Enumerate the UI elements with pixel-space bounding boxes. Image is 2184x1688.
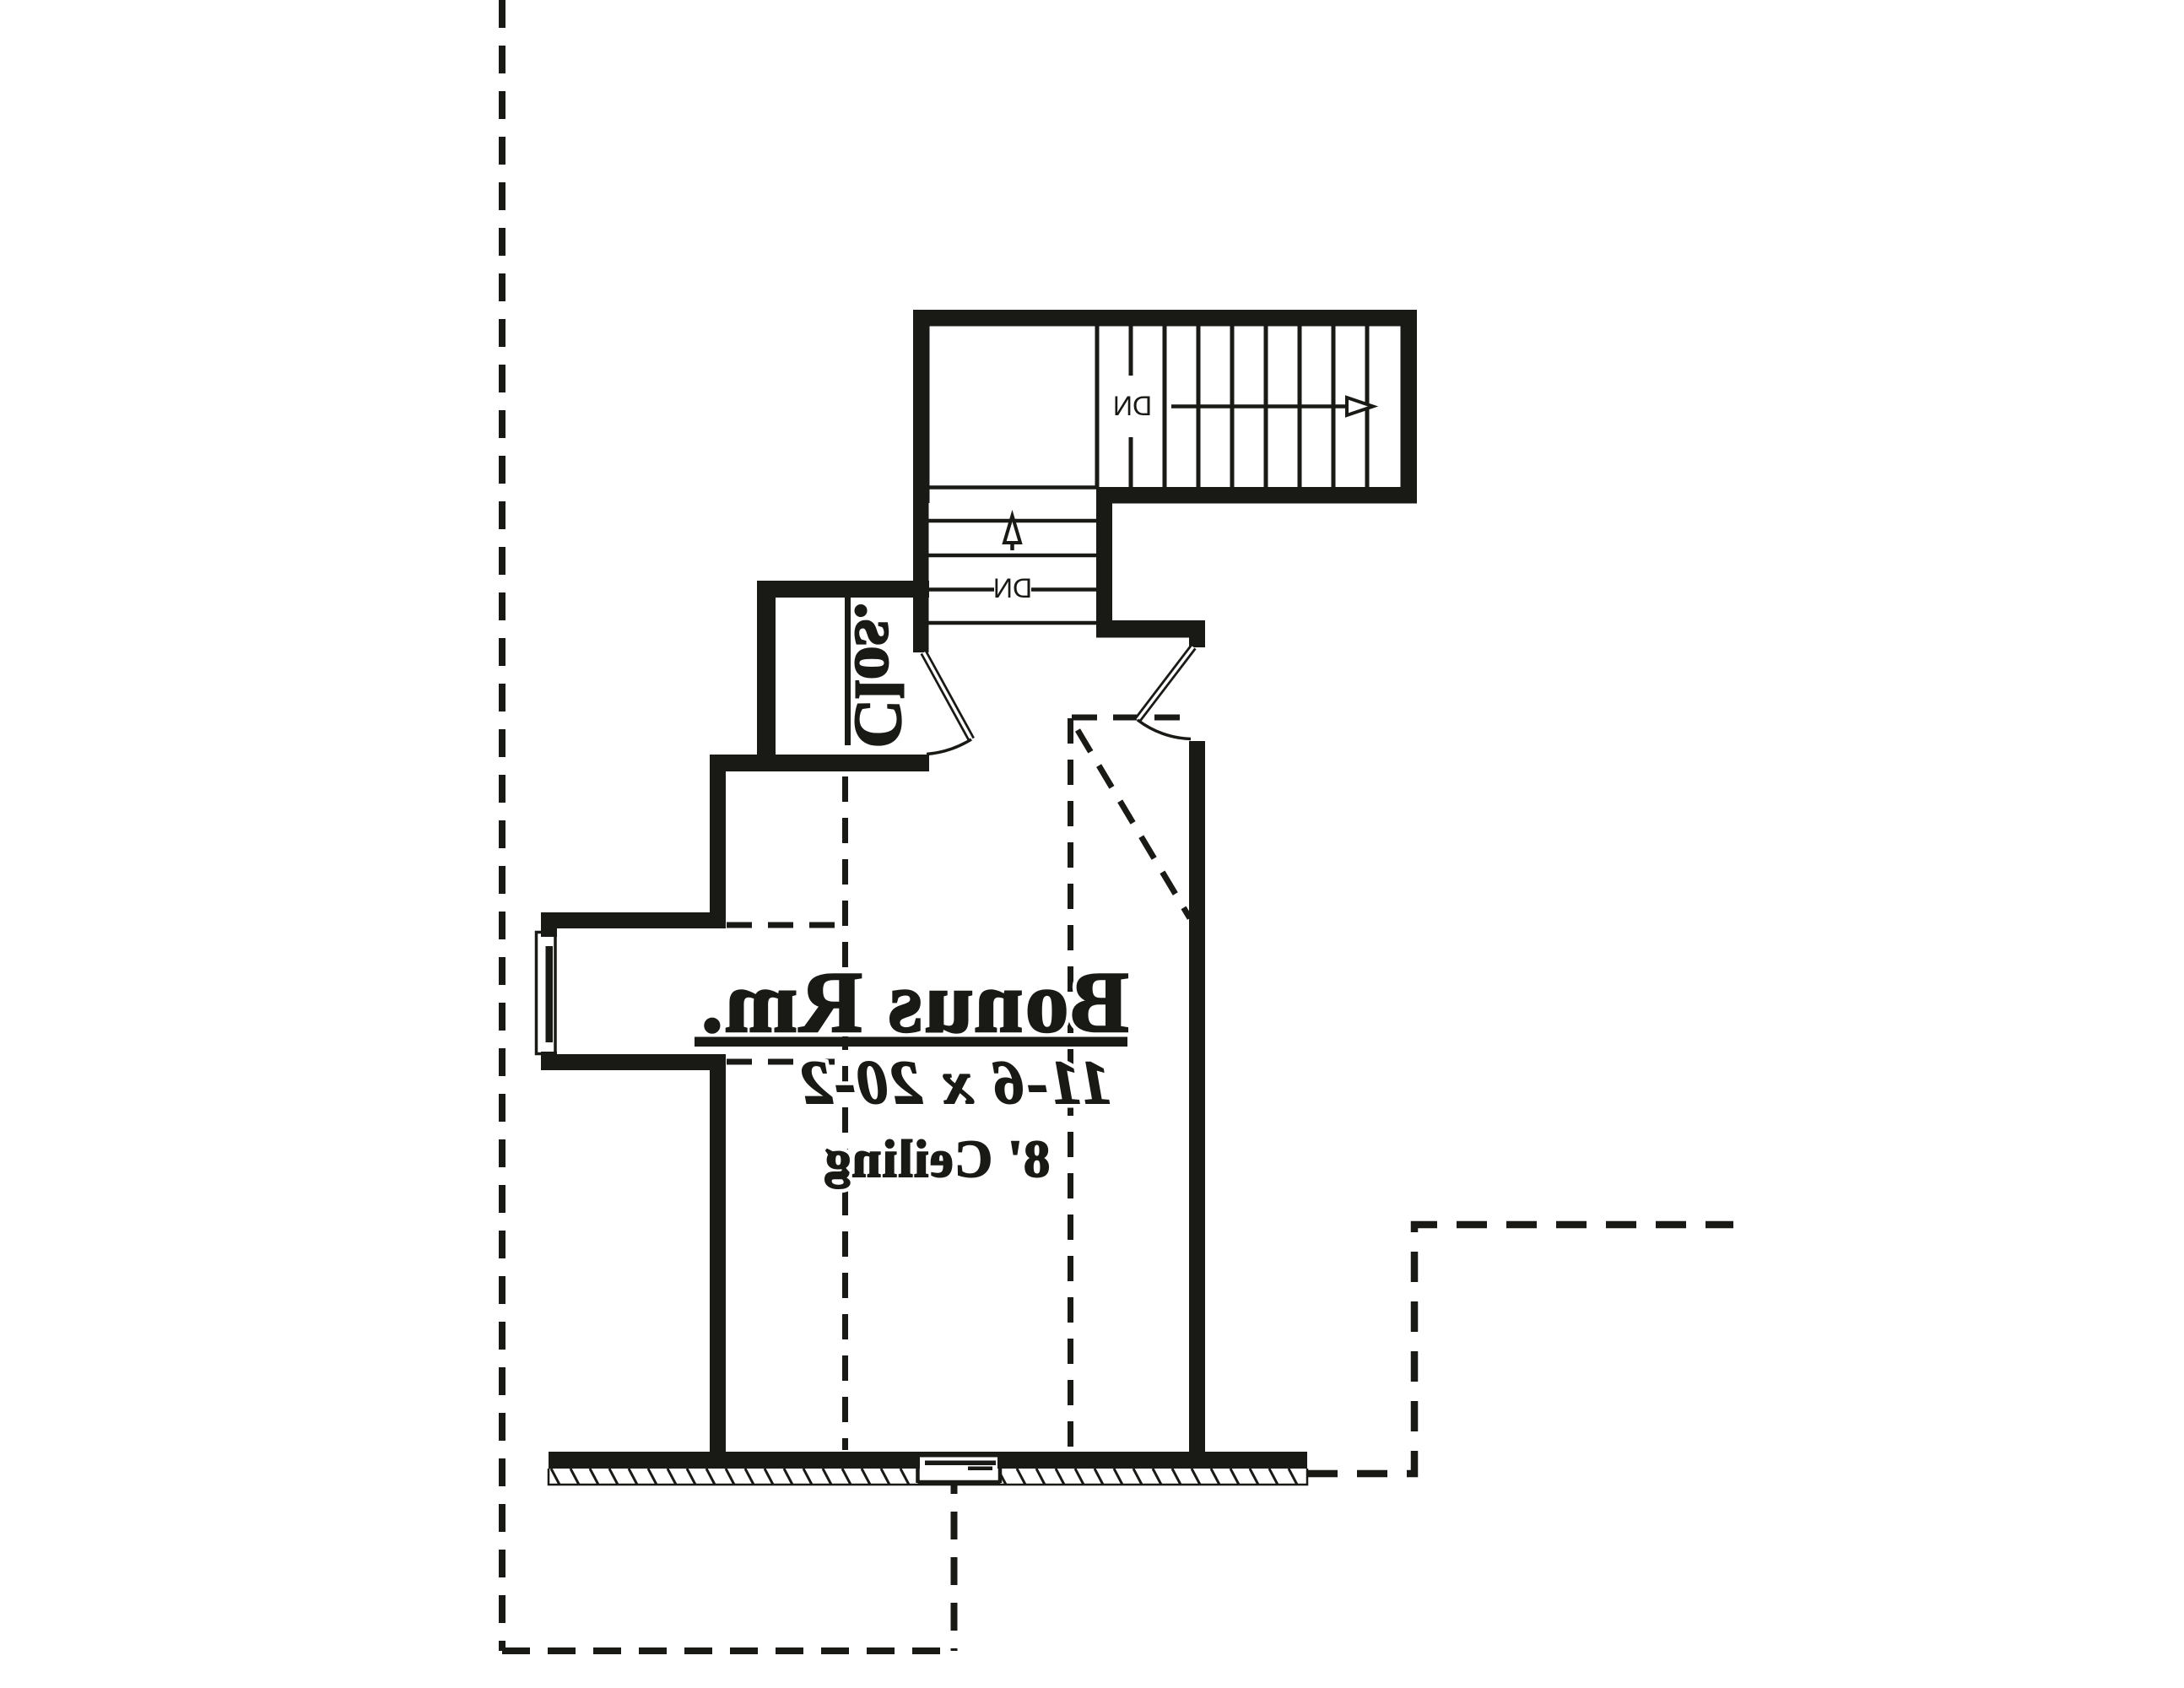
svg-text:Clos.: Clos. [841, 602, 917, 748]
svg-text:11-6 x 20-2: 11-6 x 20-2 [798, 1048, 1111, 1117]
svg-text:DN: DN [1113, 391, 1152, 421]
svg-text:8' Ceiling: 8' Ceiling [824, 1131, 1050, 1188]
svg-text:DN: DN [993, 573, 1032, 603]
svg-text:Bonus Rm.: Bonus Rm. [699, 955, 1128, 1051]
